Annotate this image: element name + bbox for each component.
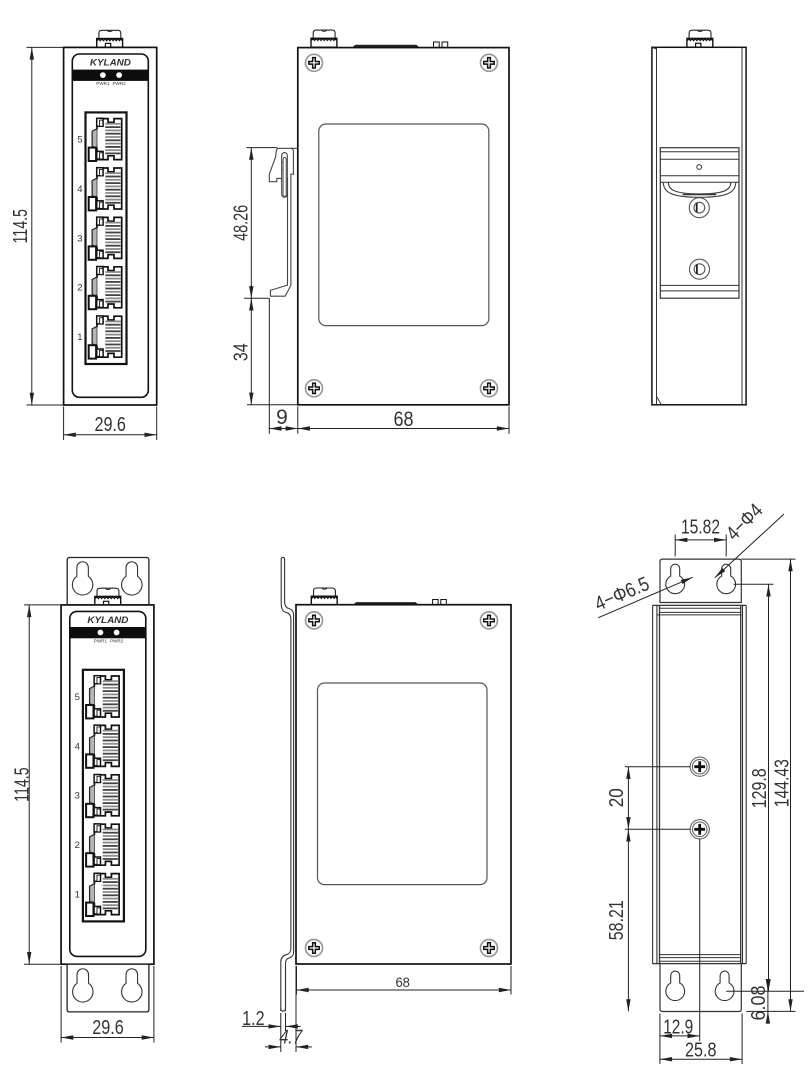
svg-text:4−Φ4: 4−Φ4 [722,500,767,545]
svg-text:1: 1 [77,332,82,343]
svg-text:29.6: 29.6 [94,414,126,436]
svg-text:129.8: 129.8 [748,768,771,808]
svg-text:34: 34 [230,343,252,361]
svg-text:PWR2: PWR2 [110,638,124,643]
svg-text:PWR2: PWR2 [112,81,126,86]
svg-text:114.5: 114.5 [11,767,33,802]
svg-text:KYLAND: KYLAND [87,615,128,625]
svg-text:12.9: 12.9 [663,1016,693,1038]
svg-text:1: 1 [75,890,80,901]
svg-text:5: 5 [77,135,82,146]
svg-text:4: 4 [77,184,82,195]
svg-text:3: 3 [75,791,80,802]
svg-text:144.43: 144.43 [770,759,793,807]
svg-text:3: 3 [77,233,82,244]
svg-text:PWR1: PWR1 [96,81,110,86]
svg-text:6.08: 6.08 [748,986,770,1021]
svg-text:20: 20 [606,788,628,807]
svg-text:68: 68 [394,408,414,431]
svg-text:4−Φ6.5: 4−Φ6.5 [592,573,653,616]
svg-text:48.26: 48.26 [230,205,252,241]
svg-text:58.21: 58.21 [606,900,628,940]
svg-text:15.82: 15.82 [681,516,720,538]
svg-text:29.6: 29.6 [92,1017,124,1039]
svg-text:25.8: 25.8 [685,1040,717,1062]
svg-text:1.2: 1.2 [242,1008,265,1030]
svg-text:4: 4 [75,741,80,752]
svg-text:KYLAND: KYLAND [90,58,131,68]
svg-text:2: 2 [77,283,82,294]
svg-text:PWR1: PWR1 [94,638,108,643]
svg-text:2: 2 [75,840,80,851]
svg-text:68: 68 [395,974,410,990]
svg-text:4.7: 4.7 [277,1027,304,1049]
svg-text:114.5: 114.5 [10,209,32,244]
svg-text:5: 5 [75,692,80,703]
svg-text:9: 9 [276,406,288,429]
